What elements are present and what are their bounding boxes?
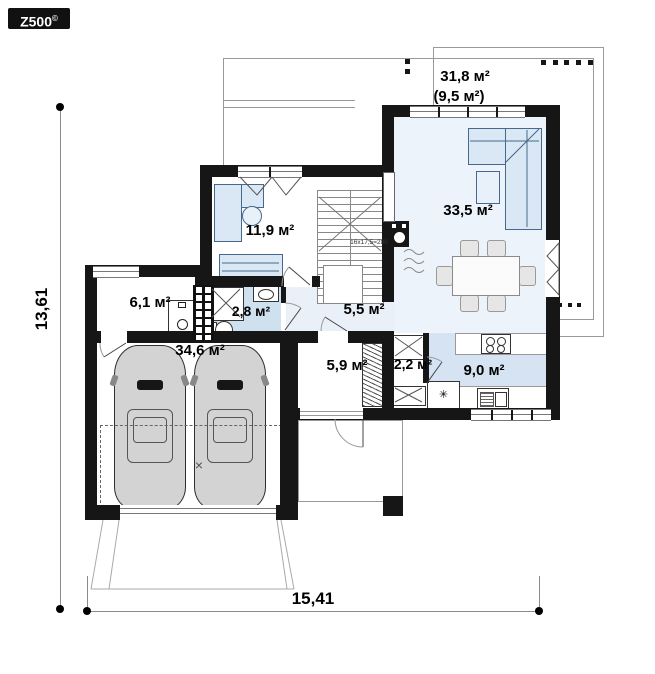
burner (486, 345, 494, 353)
dimension-line-horizontal (87, 611, 540, 612)
window (93, 266, 139, 278)
door-opening (101, 331, 127, 343)
boiler-dial (177, 319, 188, 330)
floor-plan-canvas: Z500© (0, 0, 655, 674)
door-opening (284, 276, 312, 287)
dimension-tick (87, 576, 88, 611)
wall (280, 343, 298, 520)
garage-cross: × (190, 457, 208, 475)
room-label-kitchen: 9,0 м² (439, 362, 529, 379)
porch-outline (298, 420, 403, 502)
dimension-height-label: 13,61 (32, 279, 52, 339)
room-label-bathroom: 2,8 м² (206, 303, 296, 319)
fireplace-flue (394, 232, 405, 243)
room-label-cabinet: 11,9 м² (225, 222, 315, 239)
roof-dot (541, 60, 546, 65)
fridge-symbol: ✳ (439, 389, 448, 401)
fireplace-vent (392, 224, 396, 228)
roof-dot (576, 60, 581, 65)
wall (276, 505, 298, 520)
terrace-door-opening (545, 240, 559, 297)
driveway-lines (91, 520, 294, 589)
wall (85, 265, 97, 520)
dimension-dot (535, 607, 543, 615)
kitchen-sink (477, 388, 509, 409)
dining-chair (487, 240, 506, 257)
roof-dot (564, 60, 569, 65)
coffee-table (476, 171, 500, 204)
room-label-garage: 34,6 м² (155, 342, 245, 359)
bath-sink-bowl (258, 289, 274, 300)
porch-pillar (383, 496, 403, 516)
dimension-width-label: 15,41 (283, 589, 343, 609)
window (410, 106, 525, 118)
wall (382, 333, 394, 420)
dimension-dot (56, 605, 64, 613)
roof-dot (577, 303, 581, 307)
dimension-dot (56, 103, 64, 111)
garage-door (120, 505, 276, 518)
fireplace-vent (402, 224, 406, 228)
roof-dot (405, 59, 410, 64)
dining-chair (460, 240, 479, 257)
dining-chair (519, 266, 536, 286)
dimension-dot (83, 607, 91, 615)
terrace-step-line (223, 100, 355, 101)
dining-chair (436, 266, 453, 286)
dimension-line-vertical (60, 103, 61, 612)
room-label-terrace-secondary: (9,5 м²) (414, 88, 504, 105)
car-windshield (217, 380, 243, 390)
dining-chair (460, 295, 479, 312)
room-label-hall: 5,5 м² (319, 301, 409, 318)
room-label-living: 33,5 м² (423, 202, 513, 219)
room-label-vestibule: 6,1 м² (105, 294, 195, 311)
window (471, 409, 551, 421)
staircase (317, 190, 384, 304)
roof-dot (553, 60, 558, 65)
window (238, 166, 302, 178)
dining-chair (487, 295, 506, 312)
sink-drainer (480, 392, 494, 407)
pantry-shelf (393, 386, 426, 406)
roof-dot (568, 303, 572, 307)
car-windshield (137, 380, 163, 390)
stair-first-steps (323, 265, 363, 304)
entrance-door-opening (300, 408, 363, 419)
roof-dot (588, 60, 593, 65)
terrace-step-line (223, 107, 355, 108)
roof-dot (405, 69, 410, 74)
wall (85, 505, 120, 520)
copyright-mark: © (52, 14, 58, 23)
door-opening (318, 331, 348, 343)
dimension-tick (539, 576, 540, 611)
fridge: ✳ (427, 381, 460, 409)
room-label-terrace: 31,8 м² (420, 68, 510, 85)
logo-text: Z500 (20, 14, 52, 30)
cross-symbol: × (195, 457, 203, 473)
radiator (383, 172, 395, 222)
z500-logo: Z500© (8, 8, 70, 29)
sink-basin (495, 392, 507, 407)
stove (481, 334, 511, 354)
burner (497, 345, 505, 353)
bath-sink (253, 286, 279, 302)
dining-table (452, 256, 520, 296)
